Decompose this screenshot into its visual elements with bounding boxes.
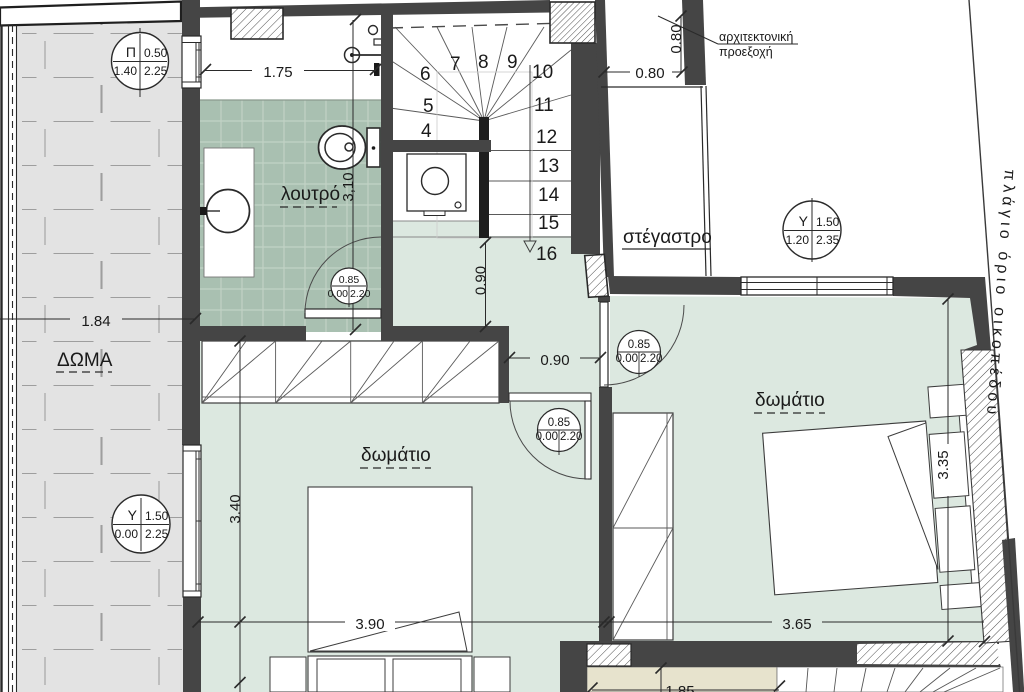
svg-text:2.20: 2.20 (640, 353, 662, 365)
svg-text:2.25: 2.25 (144, 64, 168, 78)
svg-text:3,10: 3,10 (340, 172, 357, 201)
svg-text:12: 12 (536, 127, 557, 148)
svg-text:1.84: 1.84 (81, 313, 110, 330)
svg-text:9: 9 (507, 52, 518, 73)
svg-text:1.20: 1.20 (786, 233, 810, 247)
svg-text:2.20: 2.20 (560, 431, 582, 443)
svg-text:0.90: 0.90 (540, 352, 569, 369)
svg-text:0.50: 0.50 (144, 46, 168, 60)
svg-text:11: 11 (534, 95, 554, 116)
svg-text:λουτρό: λουτρό (281, 184, 340, 205)
svg-text:3.40: 3.40 (227, 494, 244, 523)
svg-text:Υ: Υ (128, 507, 138, 523)
svg-text:ΔΩΜΑ: ΔΩΜΑ (57, 350, 113, 371)
svg-text:0.90: 0.90 (473, 266, 490, 295)
svg-text:14: 14 (538, 185, 560, 206)
svg-text:1.50: 1.50 (816, 215, 840, 229)
svg-text:Π: Π (126, 44, 136, 60)
svg-text:0.00: 0.00 (328, 288, 349, 300)
svg-text:προεξοχή: προεξοχή (719, 45, 773, 59)
svg-text:3.90: 3.90 (355, 616, 384, 633)
svg-text:0.80: 0.80 (635, 65, 664, 82)
svg-text:1.50: 1.50 (145, 509, 169, 523)
svg-text:0.00: 0.00 (115, 527, 139, 541)
svg-text:0.80: 0.80 (668, 24, 685, 53)
svg-text:7: 7 (450, 54, 461, 75)
svg-text:13: 13 (538, 156, 559, 177)
svg-text:Υ: Υ (799, 213, 809, 229)
svg-text:6: 6 (420, 64, 431, 85)
svg-text:0.00: 0.00 (536, 431, 558, 443)
svg-text:δωμάτιο: δωμάτιο (361, 445, 431, 466)
svg-text:4: 4 (421, 121, 432, 142)
svg-text:15: 15 (538, 213, 559, 234)
svg-text:1.85: 1.85 (665, 683, 694, 692)
svg-text:3.35: 3.35 (935, 450, 952, 479)
svg-text:2.35: 2.35 (816, 233, 840, 247)
svg-text:0.00: 0.00 (616, 353, 638, 365)
svg-text:2.25: 2.25 (145, 527, 169, 541)
svg-text:5: 5 (423, 96, 434, 117)
svg-text:αρχιτεκτονική: αρχιτεκτονική (719, 30, 793, 44)
svg-text:0.85: 0.85 (628, 339, 650, 351)
svg-text:10: 10 (532, 62, 553, 83)
svg-text:3.65: 3.65 (782, 616, 811, 633)
svg-text:δωμάτιο: δωμάτιο (755, 390, 825, 411)
svg-text:2.20: 2.20 (350, 288, 371, 300)
svg-text:0.85: 0.85 (339, 274, 360, 286)
svg-text:16: 16 (536, 244, 557, 265)
svg-text:8: 8 (478, 52, 489, 73)
svg-text:1.75: 1.75 (263, 64, 292, 81)
svg-text:0.85: 0.85 (548, 417, 570, 429)
svg-text:1.40: 1.40 (114, 64, 138, 78)
svg-text:στέγαστρο: στέγαστρο (623, 227, 712, 248)
